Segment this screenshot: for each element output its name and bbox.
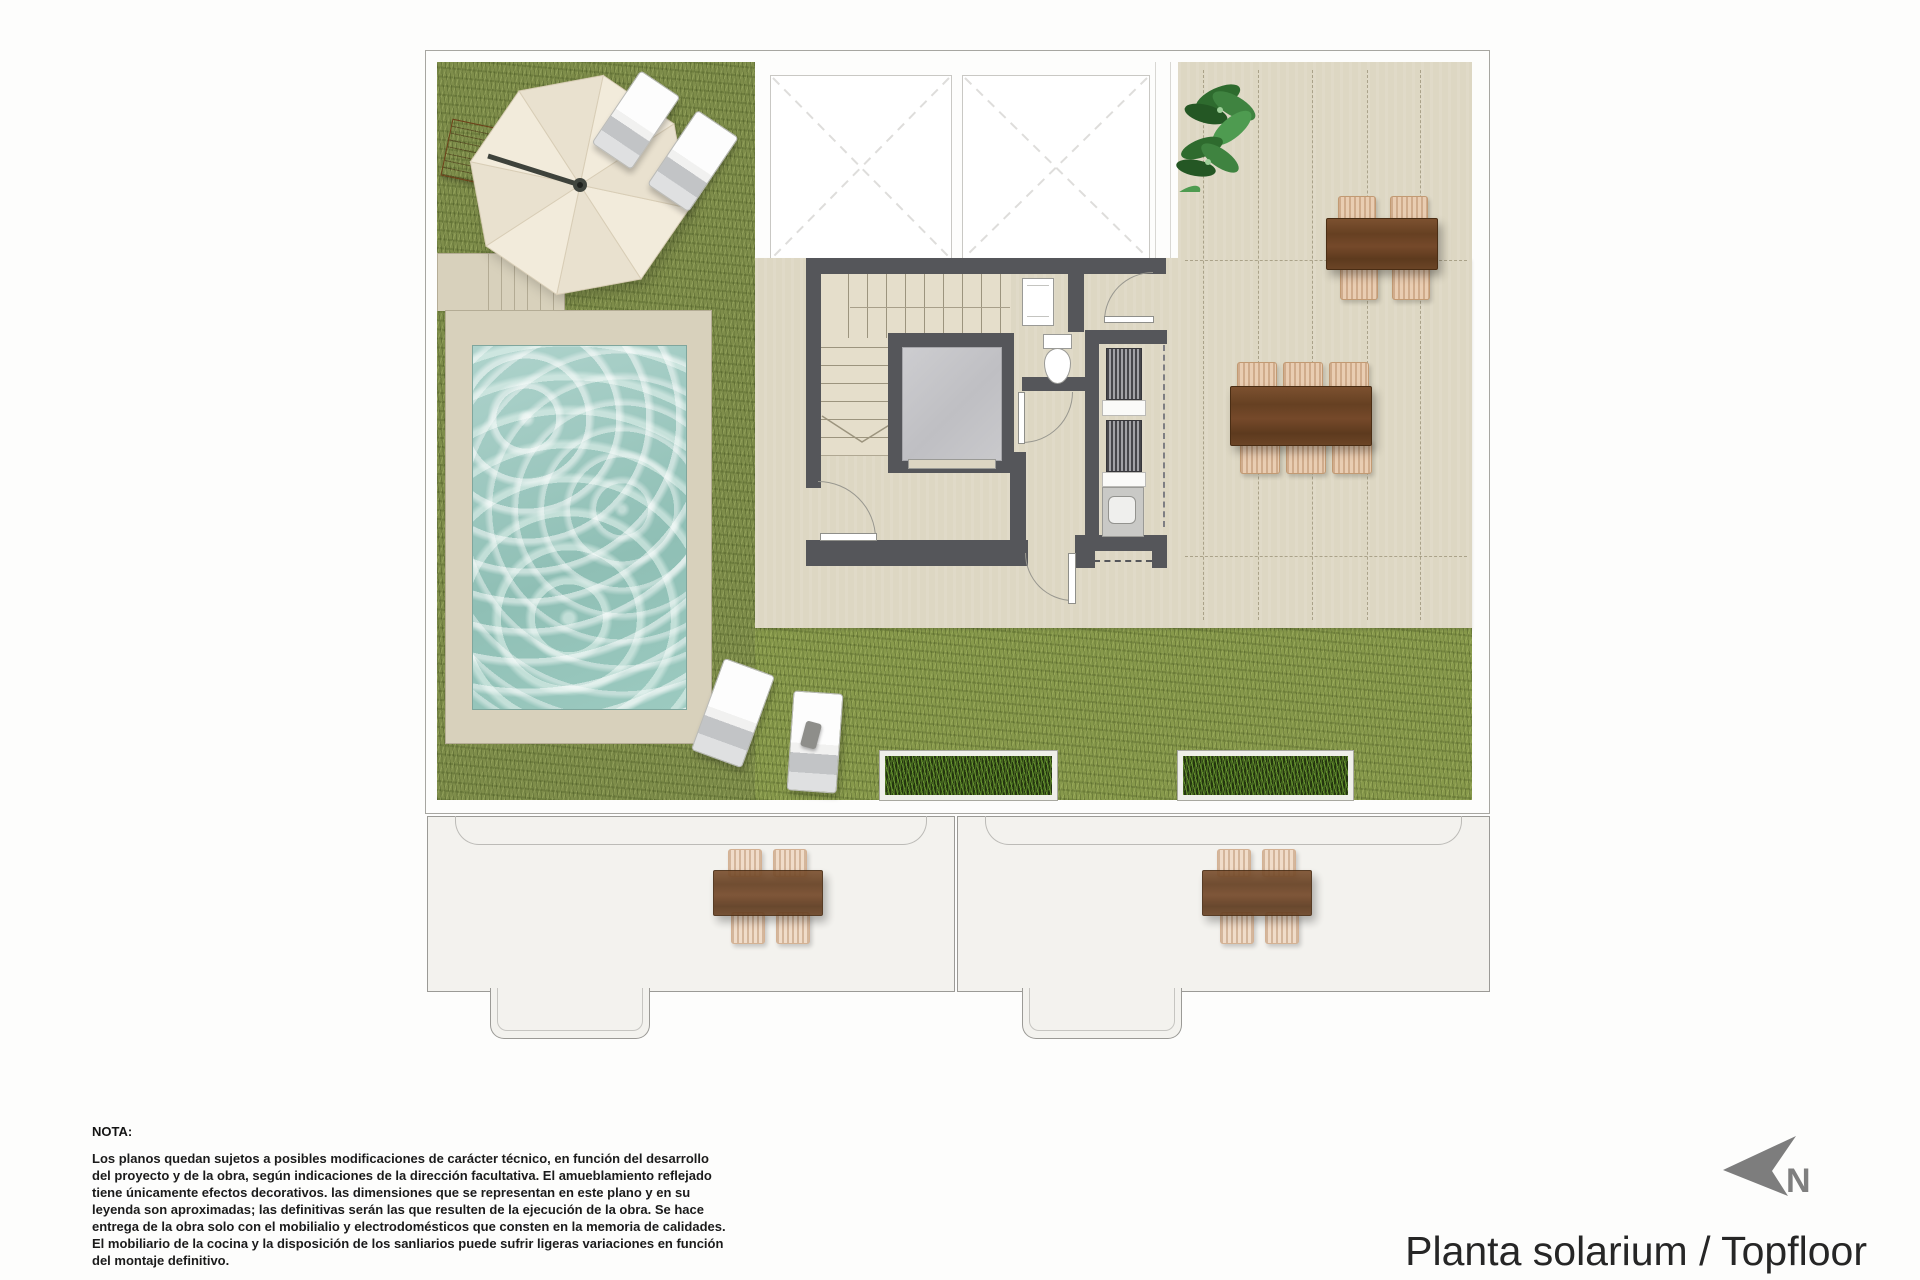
lower-dining-table	[1202, 870, 1312, 916]
wall-toilet-right	[1068, 272, 1084, 332]
lower-floor-left-parapet	[455, 816, 927, 845]
elevator-door-sill	[908, 459, 996, 469]
shelf	[1102, 400, 1146, 416]
door-leaf	[820, 533, 877, 541]
lower-floor-left-notch	[490, 988, 650, 1039]
skylight-left	[770, 75, 952, 260]
lower-floor-right-notch	[1022, 988, 1182, 1039]
shelf	[1102, 472, 1146, 487]
door-leaf	[1068, 553, 1076, 604]
wall-opening-dashed	[1094, 560, 1152, 562]
page-title: Planta solarium / Topfloor	[1405, 1228, 1867, 1275]
dining-chair	[776, 912, 810, 944]
tile-joint-line	[1185, 556, 1467, 557]
tile-joint-line	[1367, 70, 1368, 620]
lower-dining-table	[713, 870, 823, 916]
planter-box	[880, 751, 1057, 800]
skylight-cross-icon	[771, 76, 951, 259]
note-body: Los planos quedan sujetos a posibles mod…	[92, 1150, 726, 1269]
lower-floor-right-parapet	[985, 816, 1462, 845]
wall-room-top	[1085, 330, 1167, 344]
dining-chair	[1265, 912, 1299, 944]
lawn-bottom-strip	[755, 628, 1472, 800]
dining-table-4	[1326, 218, 1438, 270]
wall-bottom-left	[806, 540, 1028, 566]
room-opening-dashed	[1163, 345, 1165, 527]
door-leaf	[1104, 316, 1154, 323]
notch-inner-line	[497, 988, 643, 1031]
wall-left	[806, 258, 821, 488]
dining-table-6	[1230, 386, 1372, 446]
dining-chair	[731, 912, 765, 944]
tile-joint-line	[1312, 70, 1313, 620]
stair-treads-top	[848, 274, 1011, 338]
door-leaf	[1018, 392, 1025, 444]
machine-unit	[1106, 348, 1142, 400]
dining-chair	[1220, 912, 1254, 944]
stair-rail-line	[850, 307, 1010, 308]
toilet-tank	[1043, 334, 1072, 349]
sink	[1108, 496, 1136, 524]
swimming-pool	[472, 345, 687, 710]
bathroom-cabinet	[1022, 278, 1054, 326]
notch-inner-line	[1029, 988, 1175, 1031]
machine-unit	[1106, 420, 1142, 472]
skylight-cross-icon	[963, 76, 1149, 259]
elevator-cab	[902, 347, 1002, 461]
floor-plan-canvas: NOTA: Los planos quedan sujetos a posibl…	[0, 0, 1920, 1280]
north-label: N	[1786, 1162, 1811, 1201]
note-heading: NOTA:	[92, 1124, 132, 1139]
tile-joint-line	[1420, 70, 1421, 620]
wall-bottom-right-c	[1152, 535, 1167, 568]
wall-top	[806, 258, 1166, 274]
party-wall-strip	[1155, 62, 1171, 258]
skylight-right	[962, 75, 1150, 260]
potted-plant-icon	[1176, 72, 1276, 192]
planter-box	[1178, 751, 1353, 800]
wall-bottom-right-b	[1092, 535, 1152, 551]
wall-room-left	[1085, 330, 1099, 542]
